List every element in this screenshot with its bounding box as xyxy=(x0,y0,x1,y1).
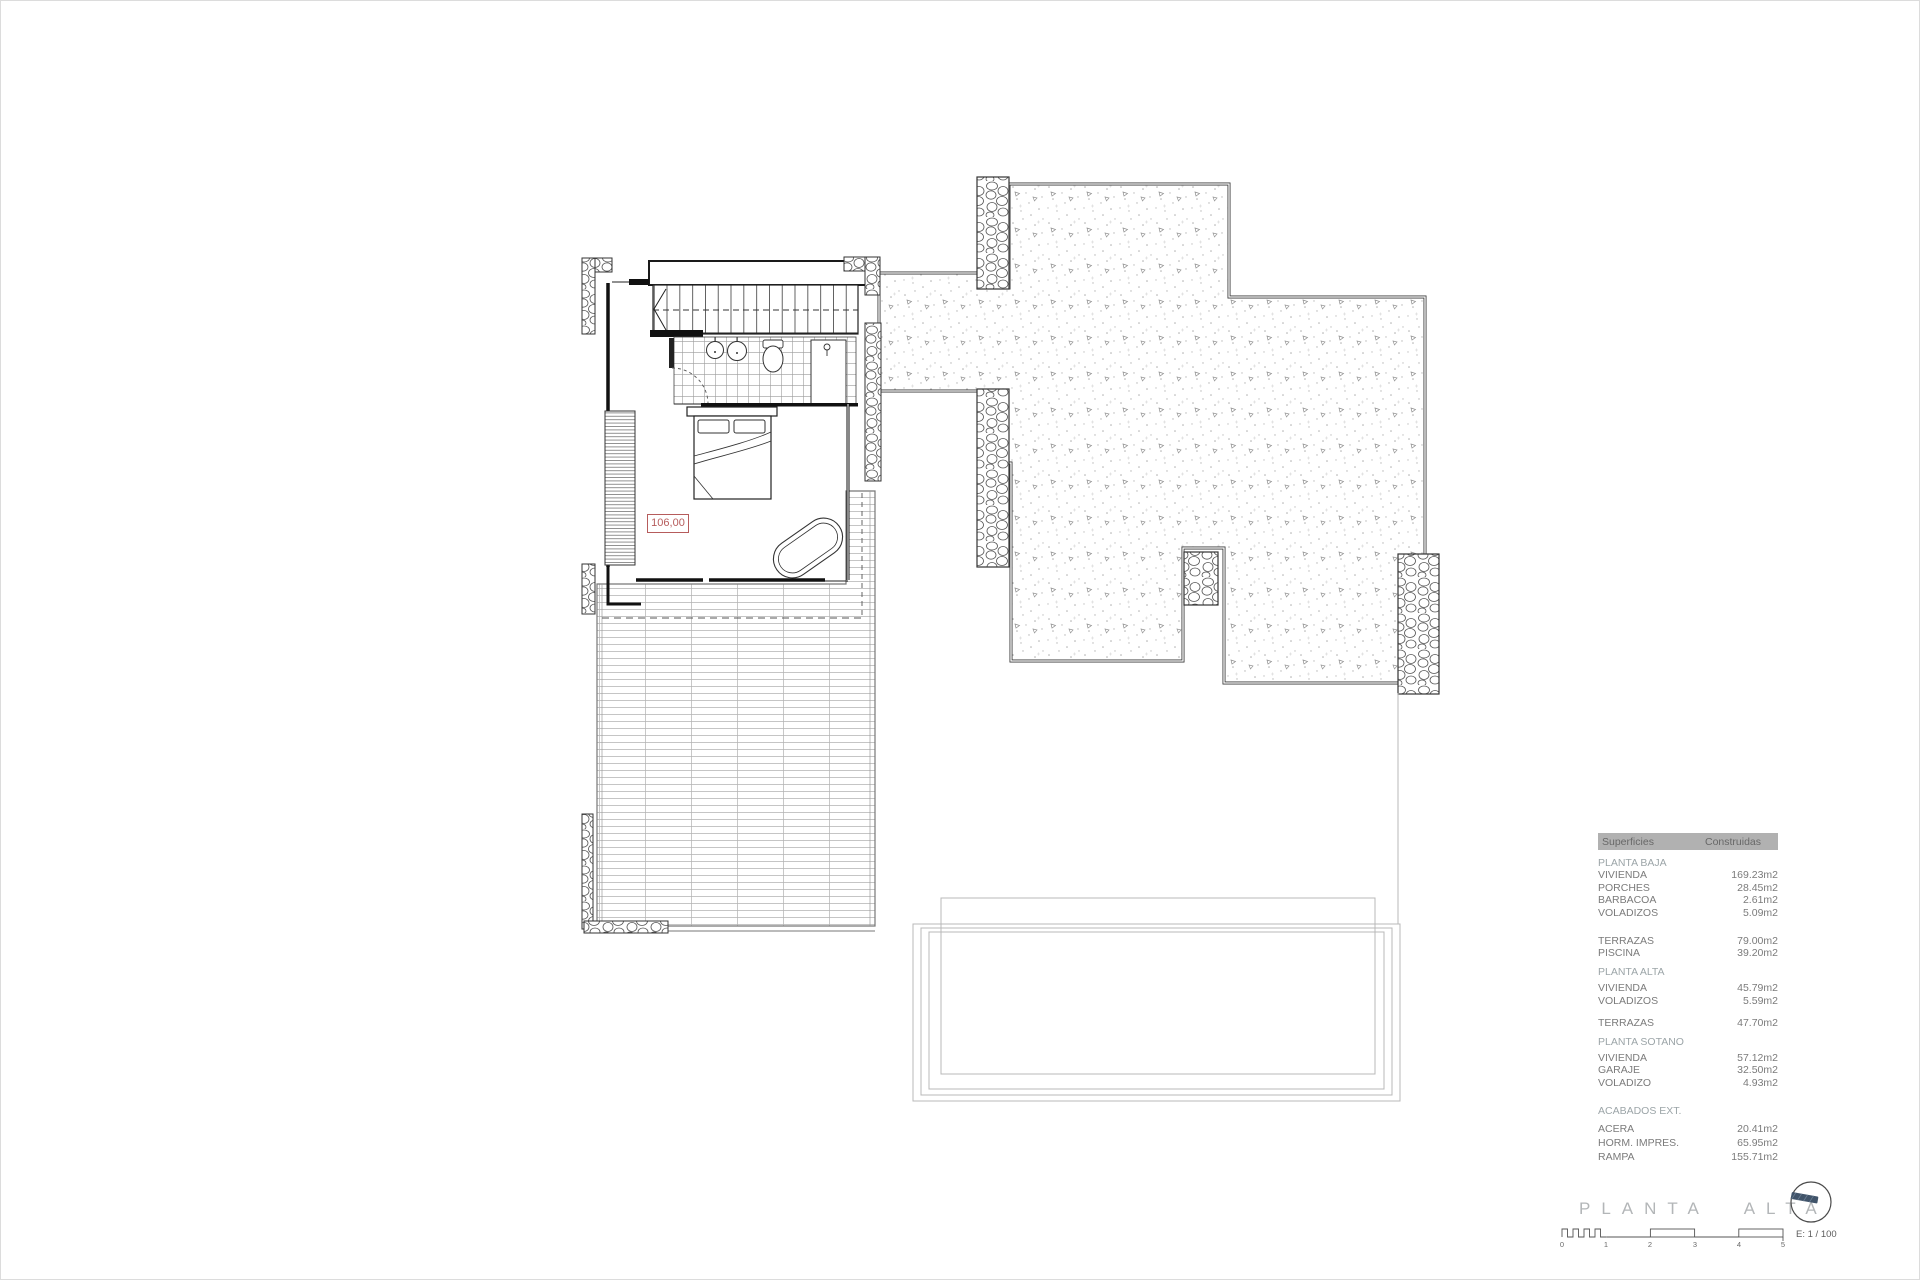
table-row: PLANTA SOTANO xyxy=(1598,1036,1778,1048)
table-row: TERRAZAS47.70m2 xyxy=(1598,1017,1778,1029)
building xyxy=(582,257,881,604)
scale-tick: 3 xyxy=(1693,1240,1697,1249)
table-row: PLANTA ALTA xyxy=(1598,966,1778,978)
door-leaf xyxy=(669,338,674,368)
staircase xyxy=(653,285,858,334)
scale-tick: 0 xyxy=(1560,1240,1564,1249)
table-row: VIVIENDA169.23m2 xyxy=(1598,869,1778,881)
table-row: VOLADIZO4.93m2 xyxy=(1598,1077,1778,1089)
bedroom xyxy=(605,407,850,585)
col-construidas: Construidas xyxy=(1694,836,1772,848)
table-row: PISCINA39.20m2 xyxy=(1598,947,1778,959)
surfaces-table: Superficies Construidas PLANTA BAJA VIVI… xyxy=(1598,833,1778,1165)
toilet xyxy=(763,340,783,372)
scale-tick: 4 xyxy=(1737,1240,1741,1249)
area-label: 106,00 xyxy=(647,514,689,533)
table-row: GARAJE32.50m2 xyxy=(1598,1064,1778,1076)
pool-outline xyxy=(913,693,1400,1101)
bathroom xyxy=(669,337,856,404)
table-row: TERRAZAS79.00m2 xyxy=(1598,935,1778,947)
louver-window xyxy=(605,411,635,565)
table-row: VIVIENDA57.12m2 xyxy=(1598,1052,1778,1064)
bathtub xyxy=(766,511,850,586)
table-row: VOLADIZOS5.09m2 xyxy=(1598,907,1778,919)
surfaces-table-header: Superficies Construidas xyxy=(1598,833,1778,850)
table-row: ACABADOS EXT. xyxy=(1598,1105,1778,1117)
table-row: RAMPA155.71m2 xyxy=(1598,1150,1778,1164)
scale-tick: 2 xyxy=(1648,1240,1652,1249)
graphic-scale-bar: 0 1 2 3 4 5 xyxy=(1557,1223,1802,1253)
table-row: PLANTA BAJA xyxy=(1598,857,1778,869)
parapet xyxy=(649,261,868,285)
drawing-sheet: 106,00 Superficies Construidas PLANTA BA… xyxy=(0,0,1920,1280)
table-row: PORCHES28.45m2 xyxy=(1598,882,1778,894)
table-row: HORM. IMPRES.65.95m2 xyxy=(1598,1136,1778,1150)
gravel-terrace xyxy=(879,177,1439,694)
scale-ratio-label: E: 1 / 100 xyxy=(1796,1229,1837,1240)
col-superficies: Superficies xyxy=(1602,836,1654,848)
table-row: VIVIENDA45.79m2 xyxy=(1598,982,1778,994)
bed xyxy=(687,407,777,499)
table-row: BARBACOA2.61m2 xyxy=(1598,894,1778,906)
table-row: ACERA20.41m2 xyxy=(1598,1122,1778,1136)
table-row: VOLADIZOS5.59m2 xyxy=(1598,995,1778,1007)
scale-tick: 1 xyxy=(1604,1240,1608,1249)
scale-tick: 5 xyxy=(1781,1240,1785,1249)
